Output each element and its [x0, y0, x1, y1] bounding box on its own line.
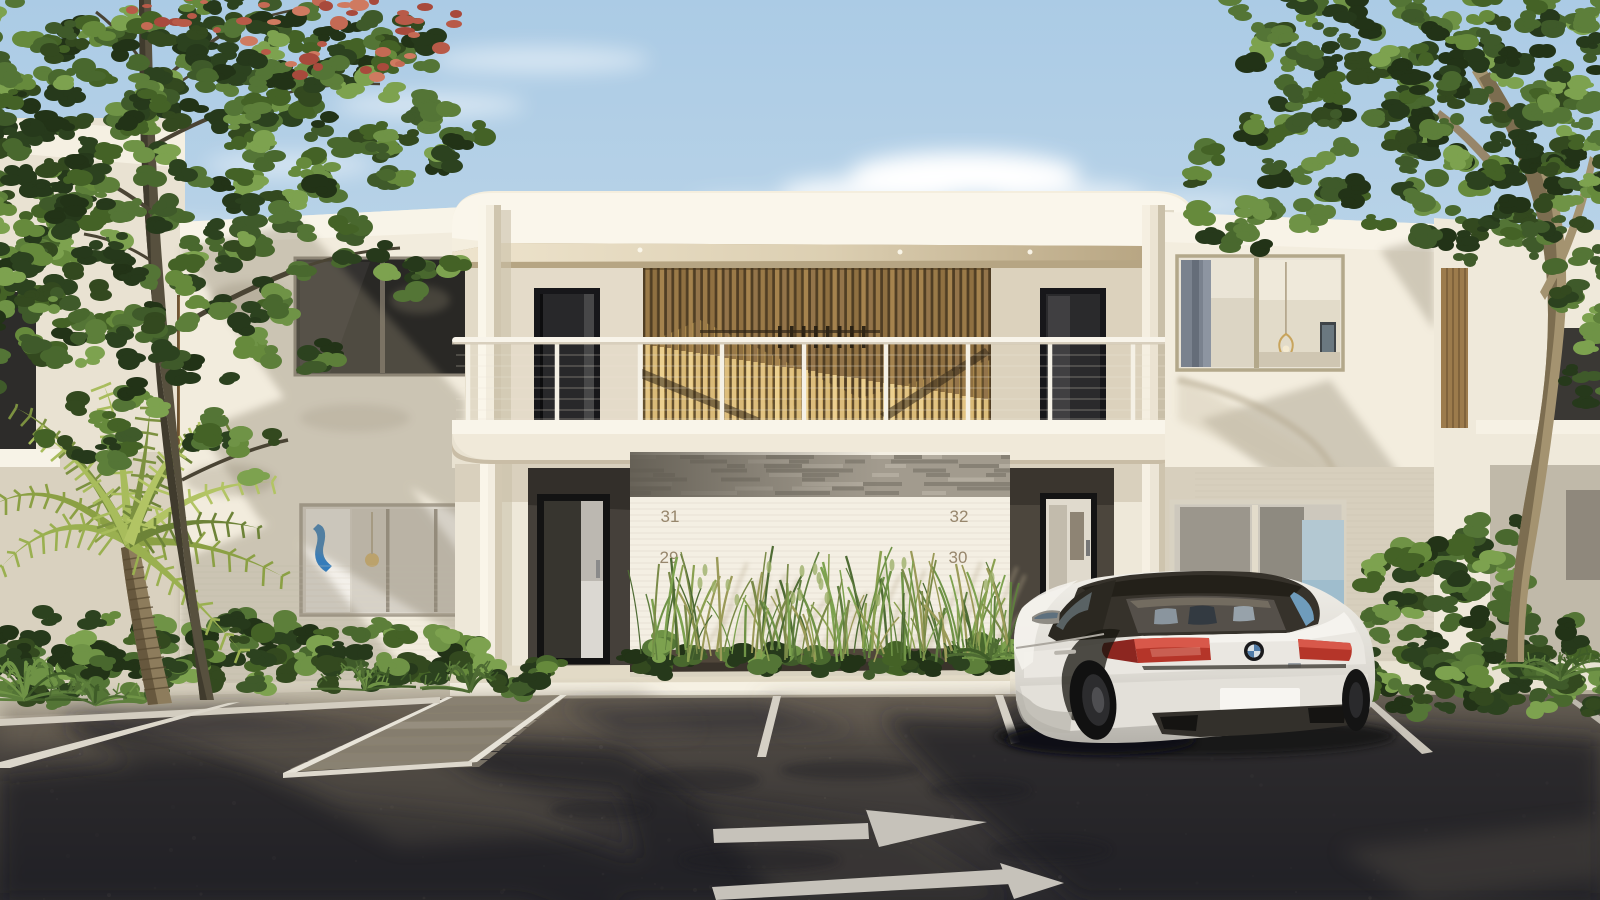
svg-text:31: 31: [661, 507, 680, 526]
svg-text:30: 30: [949, 548, 968, 567]
svg-text:32: 32: [950, 507, 969, 526]
